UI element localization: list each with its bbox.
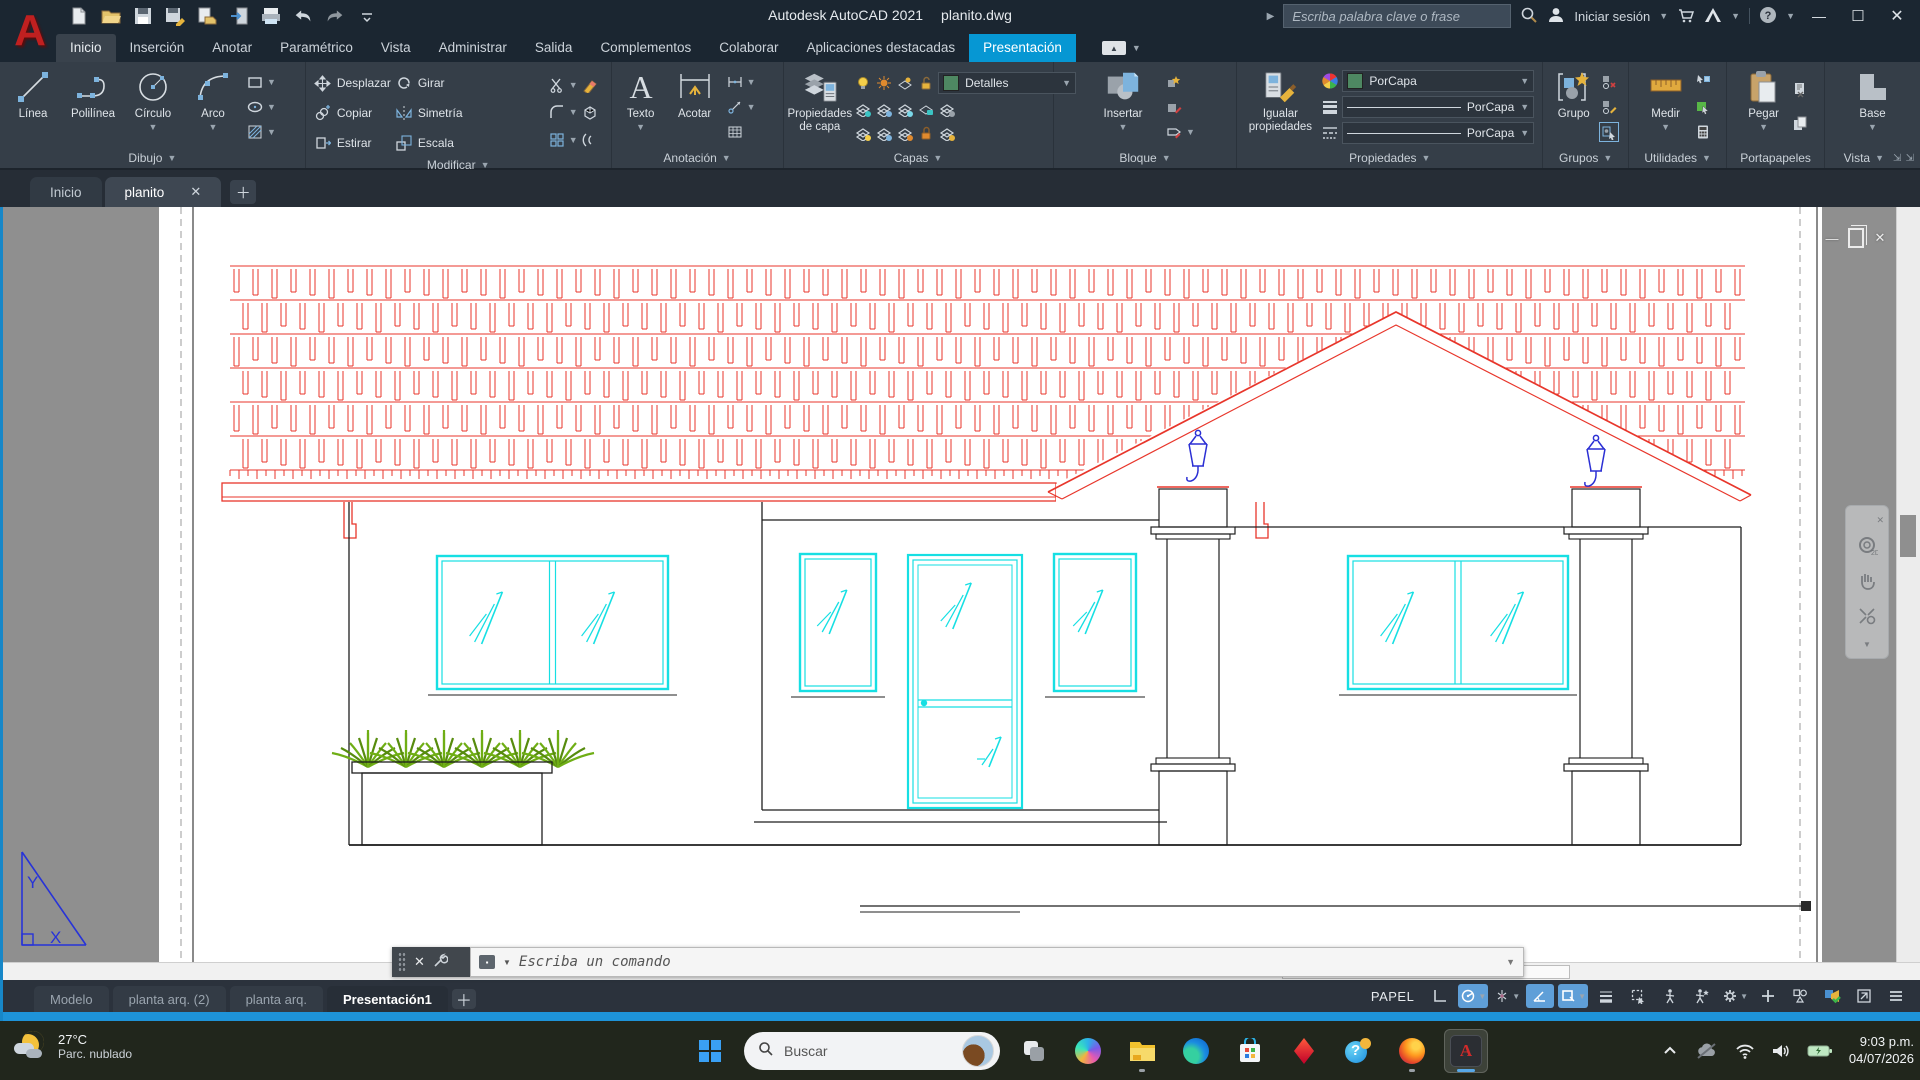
caret-down-icon: ▼: [722, 153, 731, 163]
ribbon-tab-complementos[interactable]: Complementos: [586, 34, 705, 62]
lineweight-sample: [1347, 107, 1461, 108]
layer-merge-icon[interactable]: [938, 124, 956, 142]
dimension-icon: [676, 68, 714, 106]
status-annotation-autoscale-icon[interactable]: [1688, 984, 1716, 1008]
search-label: Buscar: [784, 1043, 952, 1059]
search-icon: [758, 1041, 774, 1062]
viewport-window-controls: — ✕: [1824, 230, 1888, 246]
caret-down-icon[interactable]: ▼: [569, 107, 578, 117]
tray-chevron-icon[interactable]: [1661, 1042, 1679, 1060]
ribbon: Línea Polilínea Círculo ▼ Arco ▼ ▼: [0, 62, 1920, 170]
status-selection-cycling-icon[interactable]: [1624, 984, 1652, 1008]
panel-capas: Propiedades de capa Detalles ▼: [784, 62, 1054, 168]
layer-states-icon[interactable]: [938, 100, 956, 118]
ribbon-collapse-caret-icon[interactable]: ▼: [1132, 43, 1141, 53]
taskbar-store-icon[interactable]: [1228, 1029, 1272, 1073]
window-edge: [0, 207, 3, 1021]
close-tab-icon[interactable]: ✕: [190, 184, 201, 200]
stretch-icon: [314, 134, 332, 152]
help-caret-icon[interactable]: ▼: [1786, 11, 1795, 21]
panel-label-dibujo[interactable]: Dibujo▼: [0, 148, 305, 168]
command-grip-handle[interactable]: [398, 952, 406, 972]
layer-on-icon[interactable]: [854, 124, 872, 142]
caret-down-icon[interactable]: ▼: [1119, 123, 1128, 133]
navigation-bar[interactable]: ✕ 2D ▼: [1845, 505, 1889, 659]
autodesk-logo-icon[interactable]: [1704, 7, 1722, 26]
fillet-icon[interactable]: [548, 103, 566, 121]
caret-down-icon[interactable]: ▼: [1520, 128, 1529, 138]
status-isolate-objects-icon[interactable]: [1786, 984, 1814, 1008]
user-icon: [1547, 6, 1565, 27]
help-icon[interactable]: ?: [1759, 6, 1777, 27]
panel-label-capas[interactable]: Capas▼: [784, 148, 1053, 168]
window-bottom-border: [0, 1012, 1920, 1021]
ribbon-tab-administrar[interactable]: Administrar: [425, 34, 521, 62]
panel-label-grupos[interactable]: Grupos▼: [1543, 148, 1628, 168]
viewport-minimize-icon[interactable]: —: [1824, 230, 1840, 246]
trim-icon[interactable]: [548, 76, 566, 94]
layout-tab-bar: Modeloplanta arq. (2)planta arq.Presenta…: [34, 980, 476, 1012]
panel-propiedades: Igualar propiedades PorCapa ▼: [1237, 62, 1543, 168]
svg-text:?: ?: [1765, 10, 1772, 22]
group-icon: [1555, 68, 1593, 106]
object-color-dropdown[interactable]: PorCapa ▼: [1342, 70, 1534, 92]
autodesk-caret-icon[interactable]: ▼: [1731, 11, 1740, 21]
lineweight-dropdown[interactable]: PorCapa ▼: [1342, 96, 1534, 118]
status-bar: Modeloplanta arq. (2)planta arq.Presenta…: [0, 980, 1920, 1012]
tool-simetria[interactable]: Simetría: [395, 104, 463, 122]
taskbar-copilot-icon[interactable]: [1066, 1029, 1110, 1073]
tool-grupo[interactable]: Grupo: [1552, 66, 1596, 148]
tool-polilinea[interactable]: Polilínea: [64, 66, 122, 148]
tool-propiedades-de-capa[interactable]: Propiedades de capa: [788, 66, 853, 148]
caret-down-icon[interactable]: ▼: [569, 135, 578, 145]
ribbon-tab-inicio[interactable]: Inicio: [56, 34, 116, 62]
circle-icon: [134, 68, 172, 106]
ribbon-tab-vista[interactable]: Vista: [367, 34, 425, 62]
sign-in-caret-icon[interactable]: ▼: [1659, 11, 1668, 21]
layer-freeze-icon[interactable]: [896, 74, 914, 92]
ribbon-tab-bar: InicioInserciónAnotarParamétricoVistaAdm…: [56, 32, 1141, 62]
command-history-icon[interactable]: ▼: [1506, 957, 1515, 967]
panel-launcher-icon[interactable]: ⇲: [1893, 153, 1901, 164]
file-tab-inicio[interactable]: Inicio: [30, 177, 102, 207]
weather-temp: 27°C: [58, 1032, 132, 1047]
file-tab-planito[interactable]: planito ✕: [105, 177, 222, 207]
color-swatch: [1347, 73, 1363, 89]
paste-icon: [1745, 68, 1783, 106]
doc-title: planito.dwg: [941, 7, 1012, 23]
tool-linea[interactable]: Línea: [4, 66, 62, 148]
new-drawing-tab-button[interactable]: ＋: [230, 180, 256, 204]
autocad-window: Autodesk AutoCAD 2021 planito.dwg ▶ Escr…: [0, 0, 1920, 1080]
tool-pegar[interactable]: Pegar ▼: [1741, 66, 1787, 148]
panel-utilidades: Medir ▼ Utilidades▼: [1629, 62, 1727, 168]
status-crosshair-plus-icon[interactable]: [1754, 984, 1782, 1008]
command-prompt-icon: ▪: [479, 955, 495, 969]
caret-down-icon: ▼: [1603, 153, 1612, 163]
caret-down-icon[interactable]: ▼: [747, 102, 756, 112]
status-annotation-visibility-icon[interactable]: [1656, 984, 1684, 1008]
tool-igualar-propiedades[interactable]: Igualar propiedades: [1241, 66, 1319, 148]
arc-icon: [194, 68, 232, 106]
ribbon-tab-salida[interactable]: Salida: [521, 34, 587, 62]
taskbar-autocad-icon[interactable]: A: [1444, 1029, 1488, 1073]
panel-modificar: Desplazar Girar Copiar Simetría Estirar …: [306, 62, 612, 168]
file-tab-bar: Inicio planito ✕ ＋: [0, 170, 1920, 207]
panel-anotacion: A Texto ▼ Acotar ▼ ▼ Anotación▼: [612, 62, 784, 168]
layout-tab-planta-arq-2-[interactable]: planta arq. (2): [113, 986, 226, 1012]
cart-icon[interactable]: [1677, 6, 1695, 27]
caret-down-icon[interactable]: ▼: [1661, 123, 1670, 133]
array-icon[interactable]: [548, 131, 566, 149]
caret-down-icon[interactable]: ▼: [569, 80, 578, 90]
volume-icon[interactable]: [1771, 1042, 1791, 1060]
scale-icon: [395, 134, 413, 152]
layer-off-icon[interactable]: [854, 74, 872, 92]
open-from-web-icon[interactable]: [196, 5, 218, 27]
tool-circulo[interactable]: Círculo ▼: [124, 66, 182, 148]
system-tray: 9:03 p.m. 04/07/2026: [1661, 1029, 1914, 1073]
panel-label-bloque[interactable]: Bloque▼: [1054, 148, 1237, 168]
svg-text:2D: 2D: [1871, 550, 1878, 557]
status-dynamic-input-icon[interactable]: [1526, 984, 1554, 1008]
search-icon[interactable]: [1520, 6, 1538, 27]
cut-icon[interactable]: [1791, 81, 1809, 99]
layer-color-swatch: [943, 75, 959, 91]
calculator-icon[interactable]: [1694, 123, 1712, 141]
minimize-button[interactable]: —: [1804, 4, 1834, 28]
quick-access-toolbar: [68, 2, 378, 30]
text-icon: A: [622, 68, 660, 106]
taskbar-edge-icon[interactable]: [1174, 1029, 1218, 1073]
caret-down-icon: ▼: [1162, 153, 1171, 163]
group-selection-toggle-icon[interactable]: [1600, 123, 1618, 141]
color-wheel-icon: [1321, 72, 1339, 90]
windows-logo-icon: [699, 1040, 721, 1062]
qat-menu-icon[interactable]: [356, 5, 378, 27]
move-icon: [314, 74, 332, 92]
maximize-button[interactable]: ☐: [1843, 4, 1873, 28]
insert-block-icon: [1104, 68, 1142, 106]
layer-lock-icon[interactable]: [917, 74, 935, 92]
close-button[interactable]: ✕: [1882, 4, 1912, 28]
command-input[interactable]: ▪ ▼ Escriba un comando ▼: [470, 947, 1524, 977]
wifi-icon[interactable]: [1735, 1042, 1755, 1060]
command-tools-icon[interactable]: [433, 953, 448, 971]
caret-down-icon[interactable]: ▼: [1578, 992, 1586, 1001]
command-close-icon[interactable]: ✕: [414, 954, 425, 970]
panel-dibujo: Línea Polilínea Círculo ▼ Arco ▼ ▼: [0, 62, 306, 168]
new-layout-button[interactable]: ＋: [452, 989, 476, 1009]
taskbar-file-explorer-icon[interactable]: [1120, 1029, 1164, 1073]
mirror-icon: [395, 104, 413, 122]
polyline-icon: [74, 68, 112, 106]
layer-thaw-icon[interactable]: [896, 124, 914, 142]
layer-isolate-icon[interactable]: [875, 74, 893, 92]
tool-copiar[interactable]: Copiar: [314, 104, 391, 122]
save-as-icon[interactable]: [164, 5, 186, 27]
caret-down-icon[interactable]: ▼: [267, 127, 276, 137]
command-line-bar[interactable]: ✕ ▪ ▼ Escriba un comando ▼: [392, 947, 1524, 977]
clock-time: 9:03 p.m.: [1849, 1034, 1914, 1051]
linetype-sample: [1347, 133, 1461, 134]
table-icon[interactable]: [726, 123, 744, 141]
caret-down-icon[interactable]: ▼: [267, 77, 276, 87]
application-menu-button[interactable]: A: [8, 2, 52, 60]
ribbon-collapse-button[interactable]: ▲: [1102, 41, 1126, 55]
command-placeholder: Escriba un comando: [519, 954, 1498, 970]
panel-grupos: Grupo Grupos▼: [1543, 62, 1629, 168]
taskbar-firefox-icon[interactable]: [1390, 1029, 1434, 1073]
hatch-icon[interactable]: [246, 123, 264, 141]
windows-taskbar: 27°C Parc. nublado Buscar ?A 9:03 p.m. 0…: [0, 1021, 1920, 1080]
match-properties-icon: [1261, 68, 1299, 106]
status-lineweight-display-icon[interactable]: [1592, 984, 1620, 1008]
house-elevation-drawing[interactable]: YX: [0, 207, 1920, 962]
status-clean-screen-icon[interactable]: [1850, 984, 1878, 1008]
caret-down-icon: ▼: [1422, 153, 1431, 163]
caret-down-icon[interactable]: ▼: [747, 77, 756, 87]
layer-match-icon[interactable]: [875, 100, 893, 118]
battery-charging-icon[interactable]: [1807, 1043, 1833, 1059]
panel-label-propiedades[interactable]: Propiedades▼⇲: [1237, 148, 1542, 168]
layer-walk-icon[interactable]: [875, 124, 893, 142]
taskbar-task-view-icon[interactable]: [1012, 1029, 1056, 1073]
paper-space-button[interactable]: PAPEL: [1371, 989, 1414, 1004]
svg-text:Y: Y: [27, 873, 38, 892]
taskbar-autodesk-access-icon[interactable]: [1282, 1029, 1326, 1073]
tool-desplazar[interactable]: Desplazar: [314, 74, 391, 92]
weather-condition: Parc. nublado: [58, 1047, 132, 1061]
caret-down-icon[interactable]: ▼: [267, 102, 276, 112]
status-object-snap-icon[interactable]: ▼: [1558, 984, 1588, 1008]
undo-icon[interactable]: [292, 5, 314, 27]
ribbon-tab-presentaci-n[interactable]: Presentación: [969, 34, 1076, 62]
tool-estirar[interactable]: Estirar: [314, 134, 391, 152]
start-button[interactable]: [688, 1029, 732, 1073]
tool-acotar[interactable]: Acotar: [668, 66, 722, 148]
help-search-input[interactable]: Escriba palabra clave o frase: [1283, 4, 1511, 28]
pan-hand-icon[interactable]: [1857, 571, 1877, 596]
rectangle-icon[interactable]: [246, 73, 264, 91]
leader-icon[interactable]: [726, 98, 744, 116]
ribbon-tab-aplicaciones-destacadas[interactable]: Aplicaciones destacadas: [793, 34, 970, 62]
drawing-area[interactable]: YX: [0, 207, 1920, 962]
caret-down-icon: ▼: [1875, 153, 1884, 163]
select-all-icon[interactable]: [1694, 98, 1712, 116]
caret-down-icon[interactable]: ▼: [503, 958, 511, 967]
caret-down-icon[interactable]: ▼: [1520, 102, 1529, 112]
status-workspace-gear-icon[interactable]: ▼: [1720, 984, 1750, 1008]
line-icon: [14, 68, 52, 106]
status-snap-cursor-icon[interactable]: ▼: [1458, 984, 1488, 1008]
vertical-scrollbar[interactable]: [1896, 207, 1920, 962]
rotate-icon: [395, 74, 413, 92]
status-customization-menu-icon[interactable]: [1882, 984, 1910, 1008]
block-attributes-icon[interactable]: [1165, 123, 1183, 141]
group-edit-icon[interactable]: [1600, 98, 1618, 116]
titlebar-divider: [1749, 8, 1750, 24]
linetype-icon: [1321, 124, 1339, 142]
tool-base[interactable]: Base ▼: [1849, 66, 1897, 148]
weather-icon: [14, 1029, 48, 1063]
caret-down-icon[interactable]: ▼: [1520, 76, 1529, 86]
tool-texto[interactable]: A Texto ▼: [616, 66, 666, 148]
redo-icon[interactable]: [324, 5, 346, 27]
lineweight-icon: [1321, 98, 1339, 116]
erase-icon[interactable]: [581, 76, 599, 94]
zoom-extents-icon[interactable]: [1857, 606, 1877, 631]
weather-widget[interactable]: 27°C Parc. nublado: [14, 1029, 132, 1063]
search-expand-icon[interactable]: ▶: [1267, 11, 1275, 22]
panel-label-utilidades[interactable]: Utilidades▼: [1629, 148, 1726, 168]
navbar-close-icon[interactable]: ✕: [1876, 515, 1884, 526]
caret-down-icon[interactable]: ▼: [209, 123, 218, 133]
caret-down-icon[interactable]: ▼: [1740, 992, 1748, 1001]
layer-make-current-icon[interactable]: [854, 100, 872, 118]
layout-tab-presentaci-n1[interactable]: Presentación1: [327, 986, 448, 1012]
window-title: Autodesk AutoCAD 2021 planito.dwg: [660, 0, 1120, 30]
app-title: Autodesk AutoCAD 2021: [768, 7, 923, 23]
viewport-restore-icon[interactable]: [1848, 230, 1864, 246]
caret-down-icon[interactable]: ▼: [1478, 992, 1486, 1001]
quick-select-icon[interactable]: [1694, 73, 1712, 91]
tool-insertar[interactable]: Insertar ▼: [1093, 66, 1153, 148]
taskbar-help-app-icon[interactable]: ?: [1336, 1029, 1380, 1073]
panel-launcher-icon[interactable]: ⇲: [1906, 153, 1914, 164]
caret-down-icon[interactable]: ▼: [1512, 992, 1520, 1001]
caret-down-icon: ▼: [1702, 153, 1711, 163]
ungroup-icon[interactable]: [1600, 73, 1618, 91]
sign-in-button[interactable]: Iniciar sesión: [1574, 9, 1650, 24]
status-graphics-performance-icon[interactable]: [1818, 984, 1846, 1008]
panel-portapapeles: Pegar ▼ Portapapeles: [1727, 62, 1825, 168]
caret-down-icon: ▼: [933, 153, 942, 163]
dimension-linear-icon[interactable]: [726, 73, 744, 91]
caret-down-icon[interactable]: ▼: [1868, 123, 1877, 133]
caret-down-icon[interactable]: ▼: [1186, 127, 1195, 137]
svg-text:A: A: [629, 69, 652, 105]
layer-lock-fade-icon[interactable]: [917, 124, 935, 142]
explode-icon[interactable]: [581, 103, 599, 121]
caret-down-icon[interactable]: ▼: [149, 123, 158, 133]
caret-down-icon: ▼: [167, 153, 176, 163]
viewport-close-icon[interactable]: ✕: [1872, 230, 1888, 246]
tool-medir[interactable]: Medir ▼: [1642, 66, 1690, 148]
measure-icon: [1647, 68, 1685, 106]
linetype-dropdown[interactable]: PorCapa ▼: [1342, 122, 1534, 144]
panel-bloque: Insertar ▼ ▼ Bloque▼: [1054, 62, 1238, 168]
base-view-icon: [1854, 68, 1892, 106]
layer-previous-icon[interactable]: [896, 100, 914, 118]
caret-down-icon: ▼: [481, 160, 490, 170]
search-highlight-image[interactable]: [962, 1035, 994, 1067]
panel-label-anotacion[interactable]: Anotación▼: [612, 148, 783, 168]
clock-date: 04/07/2026: [1849, 1051, 1914, 1068]
navbar-more-icon[interactable]: ▼: [1863, 640, 1871, 649]
taskbar-clock[interactable]: 9:03 p.m. 04/07/2026: [1849, 1034, 1914, 1068]
tool-arco[interactable]: Arco ▼: [184, 66, 242, 148]
layer-unlock-icon[interactable]: [917, 100, 935, 118]
caret-down-icon[interactable]: ▼: [636, 123, 645, 133]
copy-clip-icon[interactable]: [1791, 115, 1809, 133]
ribbon-tab-inserci-n[interactable]: Inserción: [116, 34, 199, 62]
onedrive-paused-icon[interactable]: [1695, 1042, 1719, 1060]
vertical-scrollbar-thumb[interactable]: [1900, 515, 1916, 557]
taskbar-search[interactable]: Buscar: [744, 1032, 1000, 1070]
transfer-icon[interactable]: [228, 5, 250, 27]
status-grid-display-icon[interactable]: [1426, 984, 1454, 1008]
status-toggles: PAPEL ▼▼▼▼: [1371, 980, 1910, 1012]
plot-icon[interactable]: [260, 5, 282, 27]
caret-down-icon[interactable]: ▼: [1759, 123, 1768, 133]
status-osnap-tracking-icon[interactable]: ▼: [1492, 984, 1522, 1008]
ribbon-tab-colaborar[interactable]: Colaborar: [705, 34, 792, 62]
new-file-icon[interactable]: [68, 5, 90, 27]
ellipse-icon[interactable]: [246, 98, 264, 116]
block-create-icon[interactable]: [1165, 98, 1183, 116]
layout-tab-planta-arq-[interactable]: planta arq.: [230, 986, 323, 1012]
layout-tab-modelo[interactable]: Modelo: [34, 986, 109, 1012]
offset-icon[interactable]: [581, 131, 599, 149]
tool-escala[interactable]: Escala: [395, 134, 463, 152]
copy-icon: [314, 104, 332, 122]
ribbon-tab-anotar[interactable]: Anotar: [198, 34, 266, 62]
open-folder-icon[interactable]: [100, 5, 122, 27]
navigation-wheel-icon[interactable]: 2D: [1856, 535, 1878, 562]
svg-text:X: X: [50, 928, 61, 947]
tool-girar[interactable]: Girar: [395, 74, 463, 92]
ribbon-tab-param-trico[interactable]: Paramétrico: [266, 34, 367, 62]
panel-label-portapapeles[interactable]: Portapapeles: [1727, 148, 1824, 168]
block-edit-icon[interactable]: [1165, 73, 1183, 91]
save-icon[interactable]: [132, 5, 154, 27]
layer-properties-icon: [801, 68, 839, 106]
